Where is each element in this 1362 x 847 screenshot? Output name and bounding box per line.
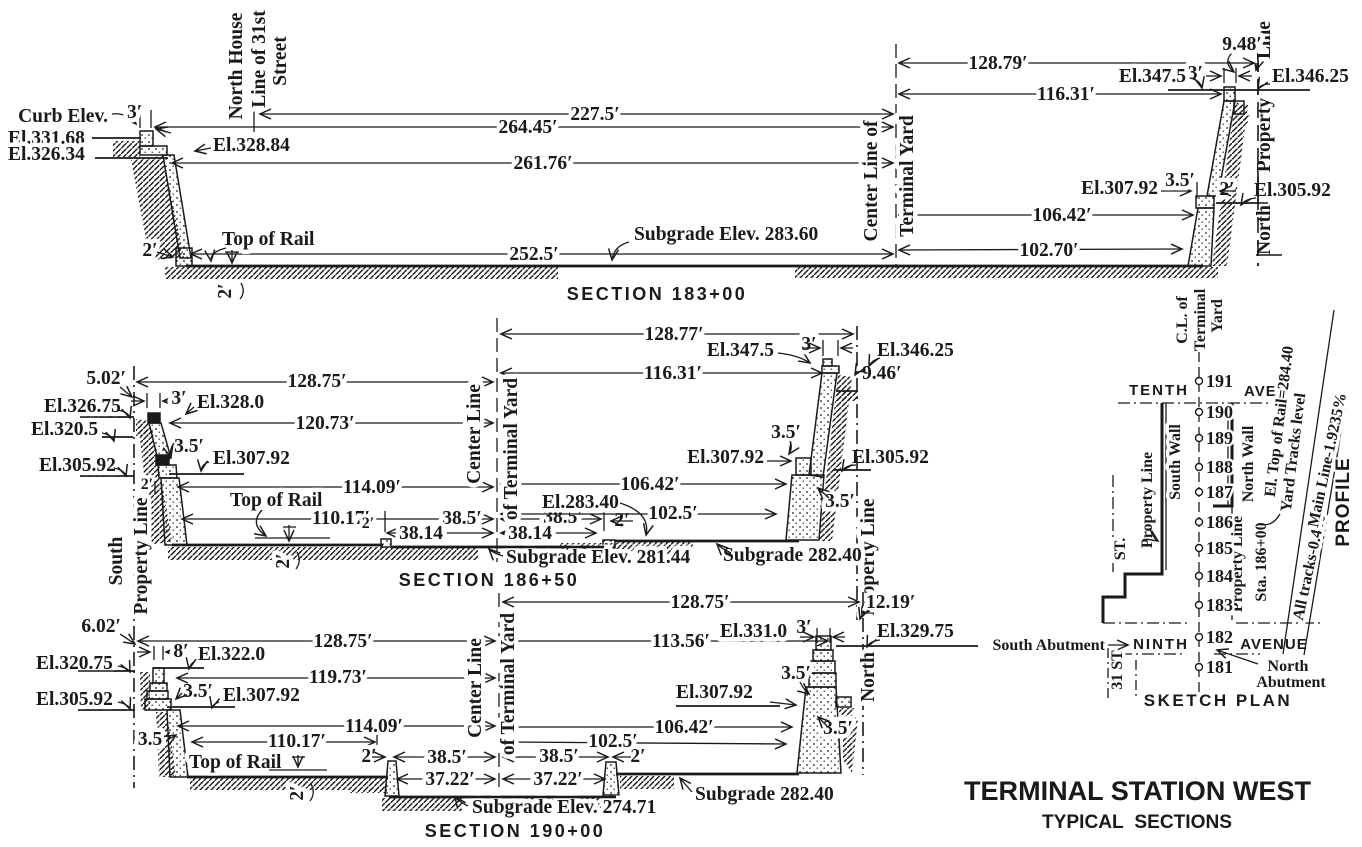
svg-text:106.42′: 106.42′ xyxy=(654,717,713,738)
svg-text:2′: 2′ xyxy=(215,283,236,298)
svg-text:North House: North House xyxy=(226,12,247,119)
svg-text:187: 187 xyxy=(1206,482,1233,502)
svg-text:Terminal Yard: Terminal Yard xyxy=(897,115,918,237)
svg-text:128.75′: 128.75′ xyxy=(287,371,346,392)
svg-text:120.73′: 120.73′ xyxy=(295,413,354,434)
svg-text:Terminal: Terminal xyxy=(1192,288,1209,351)
svg-text:116.31′: 116.31′ xyxy=(1037,84,1095,105)
svg-text:38.5′: 38.5′ xyxy=(427,747,467,768)
svg-text:3.5′: 3.5′ xyxy=(823,718,853,739)
svg-text:Subgrade Elev. 274.71: Subgrade Elev. 274.71 xyxy=(472,797,656,818)
svg-text:188: 188 xyxy=(1206,457,1233,477)
svg-text:3.5′: 3.5′ xyxy=(771,422,801,443)
svg-text:9.48′: 9.48′ xyxy=(1222,34,1262,55)
svg-text:El.331.0: El.331.0 xyxy=(720,621,787,642)
svg-text:3.5′: 3.5′ xyxy=(174,436,204,457)
svg-text:El.307.92: El.307.92 xyxy=(213,448,290,469)
svg-text:South Abutment: South Abutment xyxy=(993,637,1106,654)
svg-text:3.5′: 3.5′ xyxy=(825,491,855,512)
svg-text:El.307.92: El.307.92 xyxy=(1081,178,1158,199)
svg-text:El.326.75: El.326.75 xyxy=(44,396,121,417)
svg-text:Yard: Yard xyxy=(1209,299,1226,333)
svg-text:El.322.0: El.322.0 xyxy=(198,644,265,665)
svg-text:3.5: 3.5 xyxy=(138,729,163,750)
svg-text:3.5′: 3.5′ xyxy=(781,663,811,684)
svg-text:2′: 2′ xyxy=(287,785,308,800)
svg-text:128.75′: 128.75′ xyxy=(313,631,372,652)
svg-text:TERMINAL STATION WEST: TERMINAL STATION WEST xyxy=(964,776,1312,806)
svg-text:North: North xyxy=(858,652,879,702)
svg-text:3′: 3′ xyxy=(1188,63,1203,84)
svg-text:2′: 2′ xyxy=(362,515,375,532)
svg-text:of Terminal Yard: of Terminal Yard xyxy=(501,378,522,520)
svg-text:128.75′: 128.75′ xyxy=(670,592,729,613)
svg-text:189: 189 xyxy=(1206,428,1233,448)
svg-text:37.22′: 37.22′ xyxy=(533,769,582,790)
svg-text:38.5′: 38.5′ xyxy=(539,746,579,767)
svg-text:El.328.84: El.328.84 xyxy=(213,135,290,156)
svg-text:El.305.92: El.305.92 xyxy=(39,455,116,476)
svg-text:Center Line: Center Line xyxy=(464,384,485,484)
svg-text:El.305.92: El.305.92 xyxy=(1254,180,1331,201)
svg-text:El.320.5: El.320.5 xyxy=(31,419,98,440)
svg-text:2′: 2′ xyxy=(141,476,154,493)
svg-text:El.283.40: El.283.40 xyxy=(542,492,619,513)
svg-text:3.5′: 3.5′ xyxy=(1165,170,1195,191)
svg-text:SECTION 183+00: SECTION 183+00 xyxy=(567,284,748,304)
svg-text:102.5′: 102.5′ xyxy=(588,731,637,752)
svg-text:of Terminal Yard: of Terminal Yard xyxy=(498,613,519,755)
svg-text:3′: 3′ xyxy=(127,102,142,123)
svg-text:El.307.92: El.307.92 xyxy=(676,682,753,703)
svg-text:Subgrade 282.40: Subgrade 282.40 xyxy=(723,545,862,566)
svg-text:9.46′: 9.46′ xyxy=(862,363,902,384)
svg-text:Subgrade Elev. 283.60: Subgrade Elev. 283.60 xyxy=(634,224,818,245)
svg-text:3′: 3′ xyxy=(171,388,186,409)
svg-text:El.347.5: El.347.5 xyxy=(1119,66,1186,87)
svg-text:6.02′: 6.02′ xyxy=(81,616,121,637)
svg-text:114.09′: 114.09′ xyxy=(343,477,401,498)
svg-text:12.19′: 12.19′ xyxy=(866,592,915,613)
svg-text:181: 181 xyxy=(1206,657,1233,677)
svg-text:113.56′: 113.56′ xyxy=(652,631,710,652)
svg-text:Line of 31st: Line of 31st xyxy=(249,10,270,108)
svg-text:186: 186 xyxy=(1206,512,1233,532)
svg-text:5.02′: 5.02′ xyxy=(86,368,126,389)
svg-text:SECTION 186+50: SECTION 186+50 xyxy=(399,570,580,590)
svg-text:31 ST: 31 ST xyxy=(1109,650,1126,690)
svg-text:38.14: 38.14 xyxy=(399,523,443,544)
svg-text:Street: Street xyxy=(270,36,291,86)
svg-text:227.5′: 227.5′ xyxy=(570,104,619,125)
svg-text:TENTH: TENTH xyxy=(1129,382,1189,399)
svg-text:NINTH: NINTH xyxy=(1133,636,1189,653)
svg-text:114.09′: 114.09′ xyxy=(345,716,403,737)
svg-text:102.70′: 102.70′ xyxy=(1019,240,1078,261)
svg-text:Top of Rail: Top of Rail xyxy=(230,490,323,511)
svg-text:3.5′: 3.5′ xyxy=(183,681,213,702)
svg-text:PROFILE: PROFILE xyxy=(1333,457,1354,546)
svg-text:38.5′: 38.5′ xyxy=(442,508,482,529)
svg-text:Curb Elev.: Curb Elev. xyxy=(18,106,108,127)
svg-text:Center Line of: Center Line of xyxy=(861,120,882,241)
svg-text:El.347.5: El.347.5 xyxy=(707,340,774,361)
svg-text:261.76′: 261.76′ xyxy=(513,153,572,174)
svg-text:El.305.92: El.305.92 xyxy=(36,689,113,710)
svg-text:El.346.25: El.346.25 xyxy=(877,340,954,361)
svg-text:119.73′: 119.73′ xyxy=(309,667,367,688)
svg-text:El.346.25: El.346.25 xyxy=(1272,66,1349,87)
svg-text:110.17′: 110.17′ xyxy=(268,731,326,752)
svg-text:190: 190 xyxy=(1206,402,1233,422)
svg-text:182: 182 xyxy=(1206,627,1233,647)
svg-text:South Wall: South Wall xyxy=(1167,424,1184,500)
svg-text:252.5′: 252.5′ xyxy=(509,244,558,265)
svg-text:183: 183 xyxy=(1206,595,1233,615)
svg-text:128.79′: 128.79′ xyxy=(968,53,1027,74)
svg-text:ST.: ST. xyxy=(1112,538,1129,560)
svg-text:AVENUE: AVENUE xyxy=(1240,636,1307,653)
svg-text:184: 184 xyxy=(1206,566,1233,586)
svg-text:106.42′: 106.42′ xyxy=(620,474,679,495)
svg-text:128.77′: 128.77′ xyxy=(644,324,703,345)
svg-text:El.329.75: El.329.75 xyxy=(877,621,954,642)
svg-text:106.42′: 106.42′ xyxy=(1032,205,1091,226)
svg-text:116.31′: 116.31′ xyxy=(644,363,702,384)
svg-text:2′: 2′ xyxy=(273,553,294,568)
svg-text:Property Line: Property Line xyxy=(131,497,152,615)
svg-text:2′: 2′ xyxy=(142,240,157,261)
svg-text:El.307.92: El.307.92 xyxy=(223,685,300,706)
svg-text:Subgrade Elev. 281.44: Subgrade Elev. 281.44 xyxy=(506,547,690,568)
svg-text:North: North xyxy=(1254,205,1275,255)
svg-text:37.22′: 37.22′ xyxy=(425,769,474,790)
svg-text:8′: 8′ xyxy=(173,641,188,662)
svg-text:38.14: 38.14 xyxy=(508,523,552,544)
svg-text:North: North xyxy=(1268,658,1309,675)
svg-text:Property Line: Property Line xyxy=(1139,452,1156,548)
svg-text:191: 191 xyxy=(1206,371,1233,391)
svg-text:2′: 2′ xyxy=(1219,179,1234,200)
svg-text:Subgrade 282.40: Subgrade 282.40 xyxy=(695,784,834,805)
svg-text:185: 185 xyxy=(1206,538,1233,558)
svg-text:264.45′: 264.45′ xyxy=(498,117,557,138)
svg-text:Abutment: Abutment xyxy=(1256,674,1326,691)
svg-text:North Wall: North Wall xyxy=(1240,425,1257,502)
svg-text:El.326.34: El.326.34 xyxy=(8,144,85,165)
svg-text:Sta. 186+00: Sta. 186+00 xyxy=(1253,522,1270,601)
svg-text:South: South xyxy=(106,536,127,585)
svg-text:TYPICAL SECTIONS: TYPICAL SECTIONS xyxy=(1042,812,1232,833)
svg-text:3′: 3′ xyxy=(796,617,811,638)
svg-text:Property: Property xyxy=(1254,98,1275,173)
svg-text:El.305.92: El.305.92 xyxy=(852,447,929,468)
svg-text:Top of Rail: Top of Rail xyxy=(222,229,315,250)
svg-text:Top of Rail: Top of Rail xyxy=(189,752,282,773)
svg-text:El.307.92: El.307.92 xyxy=(687,447,764,468)
svg-text:3′: 3′ xyxy=(801,334,816,355)
svg-text:SECTION 190+00: SECTION 190+00 xyxy=(425,821,606,841)
svg-text:SKETCH PLAN: SKETCH PLAN xyxy=(1144,691,1292,710)
svg-text:El.328.0: El.328.0 xyxy=(197,392,264,413)
svg-text:Center Line: Center Line xyxy=(465,638,486,738)
svg-text:C.L. of: C.L. of xyxy=(1174,296,1191,344)
svg-text:102.5′: 102.5′ xyxy=(648,503,697,524)
